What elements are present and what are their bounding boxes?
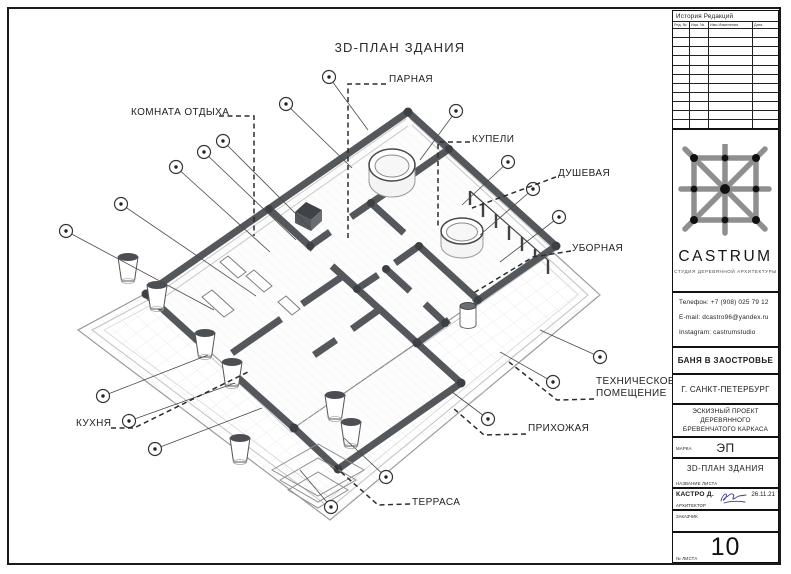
sheet-number-box: 10 № ЛИСТА bbox=[672, 532, 779, 563]
revision-cell bbox=[689, 93, 708, 101]
revision-cell bbox=[689, 29, 708, 37]
logo-box: CASTRUM СТУДИЯ ДЕРЕВЯННОЙ АРХИТЕКТУРЫ bbox=[672, 129, 779, 292]
castrum-logo-icon bbox=[673, 144, 777, 254]
revision-cell bbox=[708, 38, 752, 46]
revision-cell bbox=[673, 56, 689, 64]
revision-cell bbox=[673, 66, 689, 74]
revision-col-red: Ред. № bbox=[673, 22, 689, 28]
revision-cell bbox=[689, 120, 708, 128]
sheet-number-label: № ЛИСТА bbox=[676, 556, 697, 561]
revision-col-name: Имя Изменения bbox=[708, 22, 752, 28]
architect-name: КАСТРО Д. bbox=[676, 491, 714, 498]
client-box: ЗАКАЗЧИК bbox=[672, 510, 779, 532]
revision-cell bbox=[673, 111, 689, 119]
room-label-kupeli: КУПЕЛИ bbox=[472, 134, 514, 145]
revision-cell bbox=[752, 102, 778, 110]
city-box: Г. САНКТ-ПЕТЕРБУРГ bbox=[672, 374, 779, 404]
revision-row bbox=[673, 37, 778, 46]
revision-cell bbox=[708, 75, 752, 83]
revision-cell bbox=[752, 66, 778, 74]
revision-table-title: История Редакций bbox=[673, 11, 778, 22]
room-label-komnata-otdyha: КОМНАТА ОТДЫХА bbox=[131, 107, 229, 118]
revision-cell bbox=[673, 120, 689, 128]
architect-signature bbox=[718, 491, 748, 504]
revision-cell bbox=[689, 111, 708, 119]
revision-cell bbox=[708, 29, 752, 37]
revision-row bbox=[673, 101, 778, 110]
water-heater bbox=[460, 303, 476, 329]
revision-cell bbox=[752, 29, 778, 37]
room-label-dushevaya: ДУШЕВАЯ bbox=[558, 168, 610, 179]
revision-cell bbox=[752, 120, 778, 128]
room-label-ubornaya: УБОРНАЯ bbox=[572, 243, 623, 254]
room-label-parnaya: ПАРНАЯ bbox=[389, 74, 433, 85]
revision-cell bbox=[689, 75, 708, 83]
contact-email: E-mail: dcastro96@yandex.ru bbox=[679, 314, 778, 321]
revision-cell bbox=[673, 47, 689, 55]
client-label: ЗАКАЗЧИК bbox=[676, 514, 698, 519]
revision-cell bbox=[752, 56, 778, 64]
project-type-line1: ЭСКИЗНЫЙ ПРОЕКТ ДЕРЕВЯННОГО bbox=[673, 407, 778, 425]
revision-row bbox=[673, 110, 778, 119]
contact-instagram: Instagram: castrumstudio bbox=[679, 329, 778, 336]
room-label-kuhnya: КУХНЯ bbox=[76, 418, 111, 429]
sheet-name-label: НАЗВАНИЕ ЛИСТА bbox=[676, 481, 717, 486]
architect-box: КАСТРО Д. 26.11.21 АРХИТЕКТОР bbox=[672, 488, 779, 510]
revision-cell bbox=[752, 93, 778, 101]
revision-col-izm: Изм. № bbox=[689, 22, 708, 28]
revision-row bbox=[673, 119, 778, 128]
revision-cell bbox=[708, 102, 752, 110]
revision-table-header: Ред. № Изм. № Имя Изменения Дата bbox=[673, 22, 778, 29]
revision-cell bbox=[689, 38, 708, 46]
revision-cell bbox=[708, 111, 752, 119]
drawing-title: 3D-ПЛАН ЗДАНИЯ bbox=[280, 40, 520, 55]
revision-cell bbox=[689, 47, 708, 55]
tub-2 bbox=[441, 218, 483, 258]
revision-cell bbox=[752, 47, 778, 55]
revision-row bbox=[673, 65, 778, 74]
revision-row bbox=[673, 74, 778, 83]
project-name-box: БАНЯ В ЗАОСТРОВЬЕ bbox=[672, 347, 779, 374]
revision-cell bbox=[752, 111, 778, 119]
revision-table-rows bbox=[673, 29, 778, 128]
logo-subtitle: СТУДИЯ ДЕРЕВЯННОЙ АРХИТЕКТУРЫ bbox=[673, 269, 778, 274]
room-label-tehnicheskoe: ТЕХНИЧЕСКОЕ ПОМЕЩЕНИЕ bbox=[596, 376, 676, 400]
architect-label: АРХИТЕКТОР bbox=[676, 503, 706, 508]
revision-cell bbox=[689, 84, 708, 92]
contacts-box: Телефон: +7 (908) 025 79 12 E-mail: dcas… bbox=[672, 292, 779, 347]
revision-cell bbox=[673, 38, 689, 46]
room-label-prihozhaya: ПРИХОЖАЯ bbox=[528, 423, 589, 434]
revision-cell bbox=[673, 29, 689, 37]
revision-row bbox=[673, 29, 778, 37]
revision-row bbox=[673, 92, 778, 101]
project-city: Г. САНКТ-ПЕТЕРБУРГ bbox=[673, 375, 778, 403]
revision-cell bbox=[708, 120, 752, 128]
revision-cell bbox=[673, 84, 689, 92]
revision-row bbox=[673, 46, 778, 55]
revision-cell bbox=[752, 75, 778, 83]
revision-row bbox=[673, 55, 778, 64]
revision-cell bbox=[673, 93, 689, 101]
floor-plan-drawing bbox=[0, 0, 670, 574]
revision-cell bbox=[708, 66, 752, 74]
revision-cell bbox=[689, 102, 708, 110]
revision-history-table: История Редакций Ред. № Изм. № Имя Измен… bbox=[672, 10, 779, 129]
revision-cell bbox=[708, 56, 752, 64]
logo-name: CASTRUM bbox=[673, 248, 778, 266]
revision-cell bbox=[708, 93, 752, 101]
architect-date: 26.11.21 bbox=[751, 491, 775, 498]
revision-cell bbox=[689, 56, 708, 64]
project-name: БАНЯ В ЗАОСТРОВЬЕ bbox=[673, 348, 778, 373]
revision-row bbox=[673, 83, 778, 92]
revision-cell bbox=[673, 75, 689, 83]
contact-phone: Телефон: +7 (908) 025 79 12 bbox=[679, 299, 778, 306]
revision-cell bbox=[752, 38, 778, 46]
revision-cell bbox=[689, 66, 708, 74]
project-type-line2: БРЕВЕНЧАТОГО КАРКАСА bbox=[683, 425, 768, 434]
revision-cell bbox=[708, 47, 752, 55]
revision-cell bbox=[752, 84, 778, 92]
stage-box: МАРКА ЭП bbox=[672, 437, 779, 458]
room-label-terrasa: ТЕРРАСА bbox=[412, 497, 460, 508]
project-type-box: ЭСКИЗНЫЙ ПРОЕКТ ДЕРЕВЯННОГО БРЕВЕНЧАТОГО… bbox=[672, 404, 779, 437]
revision-cell bbox=[708, 84, 752, 92]
tub-1 bbox=[369, 149, 415, 197]
revision-cell bbox=[673, 102, 689, 110]
revision-col-date: Дата bbox=[752, 22, 778, 28]
stage-value: ЭП bbox=[673, 438, 778, 457]
sheet-name-box: 3D-ПЛАН ЗДАНИЯ НАЗВАНИЕ ЛИСТА bbox=[672, 458, 779, 488]
